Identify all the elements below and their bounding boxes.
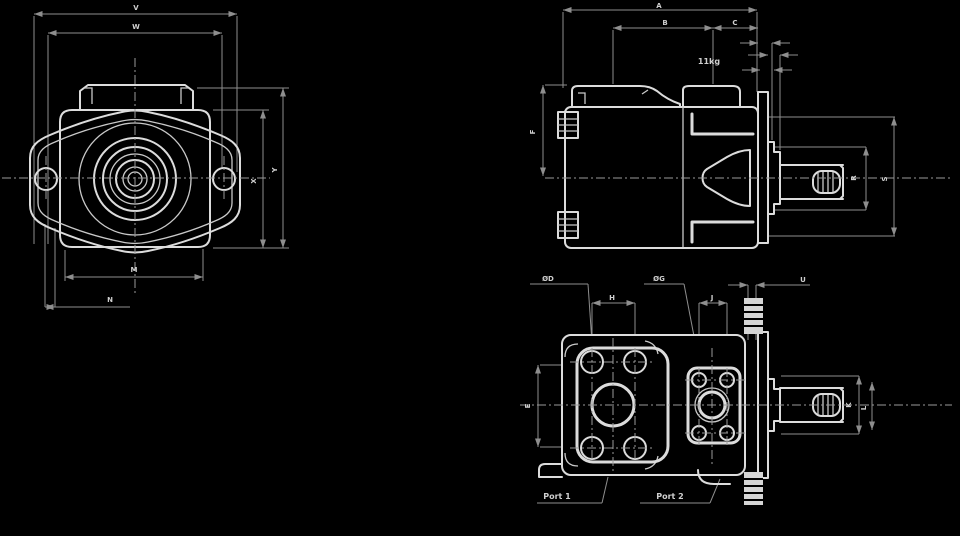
front-view: [2, 14, 289, 307]
threaded-boss-bottom: [744, 472, 763, 505]
threaded-boss-top: [744, 298, 763, 334]
bottom-tab: [539, 464, 562, 477]
dim-label-11kg: 11kg: [698, 57, 720, 66]
dim-label-r: R: [850, 175, 858, 181]
dim-label-f: F: [529, 129, 537, 134]
dim-label-w: W: [132, 23, 140, 31]
dim-label-u: U: [800, 276, 806, 284]
dim-label-ød: ØD: [542, 275, 554, 283]
dim-label-port-1: Port 1: [543, 492, 571, 501]
front-cover-side: [572, 86, 680, 107]
dim-label-c: C: [732, 19, 737, 27]
shaft-side: [780, 165, 843, 199]
dim-label-l: L: [860, 405, 868, 410]
side-view: [543, 10, 952, 248]
dim-label-h: H: [609, 294, 615, 302]
dim-label-j: J: [710, 294, 714, 302]
technical-drawing-canvas: VWXYMNABC11kgFRSØDØGHJUEKLPort 1Port 2: [0, 0, 960, 536]
mounting-plate-side: [758, 92, 768, 243]
pump-body-side: [565, 107, 758, 248]
dim-label-a: A: [656, 2, 662, 10]
dim-label-b: B: [662, 19, 667, 27]
dim-label-y: Y: [271, 167, 279, 174]
dim-label-s: S: [881, 176, 889, 181]
dim-label-m: M: [131, 266, 138, 274]
rear-cover-side: [683, 86, 740, 107]
dim-label-k: K: [845, 402, 853, 408]
dim-label-n: N: [107, 296, 113, 304]
dim-label-øg: ØG: [653, 275, 665, 283]
bottom-view: [520, 284, 952, 505]
dim-label-e: E: [524, 403, 532, 408]
top-cap-front: [80, 85, 193, 110]
dim-label-port-2: Port 2: [656, 492, 683, 501]
dim-label-x: X: [250, 178, 258, 184]
dim-label-v: V: [133, 4, 139, 12]
pump-drawing-svg: VWXYMNABC11kgFRSØDØGHJUEKLPort 1Port 2: [0, 0, 960, 536]
